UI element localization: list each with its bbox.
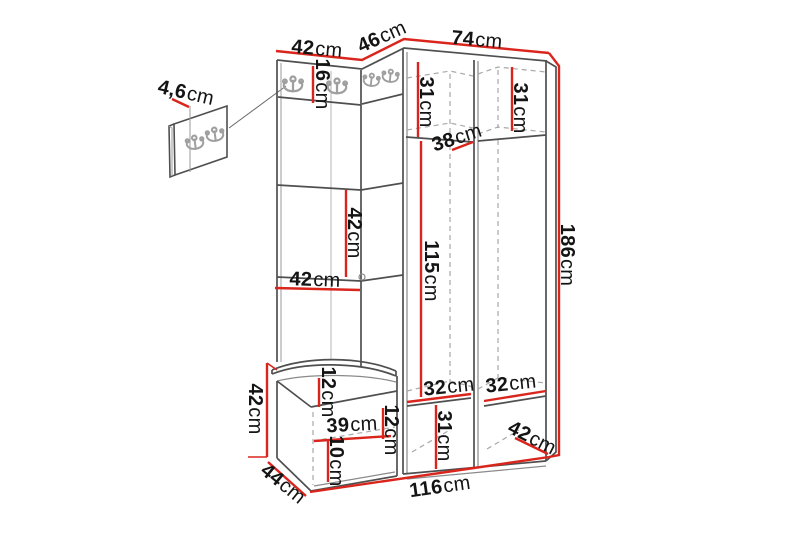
coat-hook-icon: [382, 69, 400, 83]
main-unit-outline: [277, 48, 556, 479]
furniture-line-drawing: [0, 0, 800, 533]
coat-hook-icon: [205, 126, 224, 142]
coat-hook-icon: [363, 73, 381, 87]
dimension-lines: [172, 39, 559, 496]
wall-hook-panel: [169, 86, 286, 177]
coat-hook-icon: [327, 79, 347, 94]
coat-hook-icon: [185, 134, 204, 150]
bench: [272, 360, 397, 491]
coat-hook-icon: [283, 77, 303, 92]
diagram-canvas: 4,6cm 42cm 46cm 74cm 16cm 31cm 31cm 38cm…: [0, 0, 800, 533]
